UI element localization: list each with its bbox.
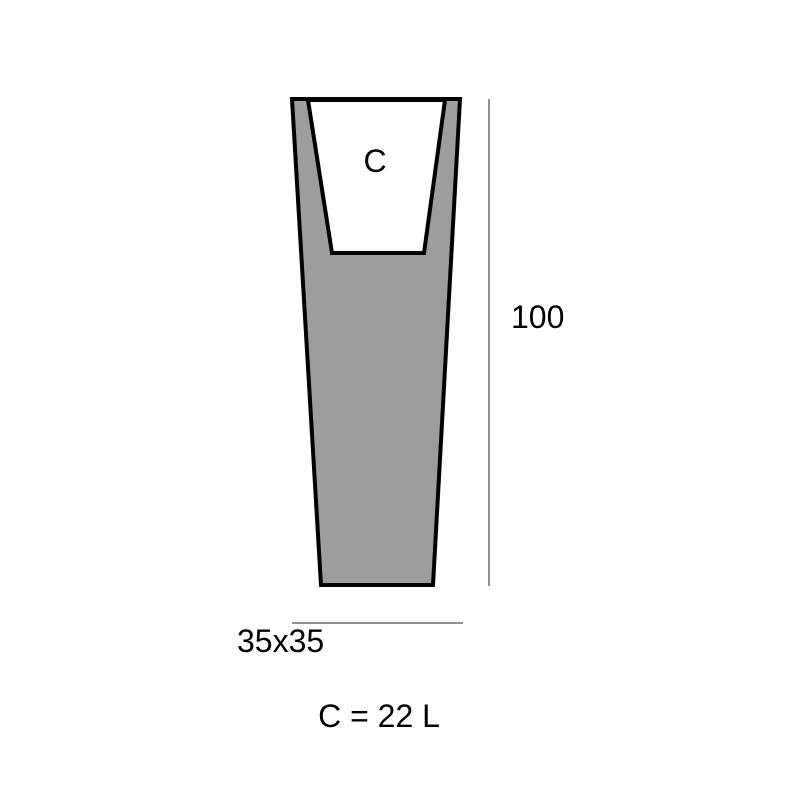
cavity-label: C xyxy=(363,145,386,177)
base-dimension-label: 35x35 xyxy=(237,625,324,657)
product-dimension-drawing: C 100 35x35 C = 22 L xyxy=(0,0,800,800)
planter-drawing-svg xyxy=(0,0,800,800)
height-dimension-label: 100 xyxy=(511,301,564,333)
capacity-label: C = 22 L xyxy=(318,700,440,732)
